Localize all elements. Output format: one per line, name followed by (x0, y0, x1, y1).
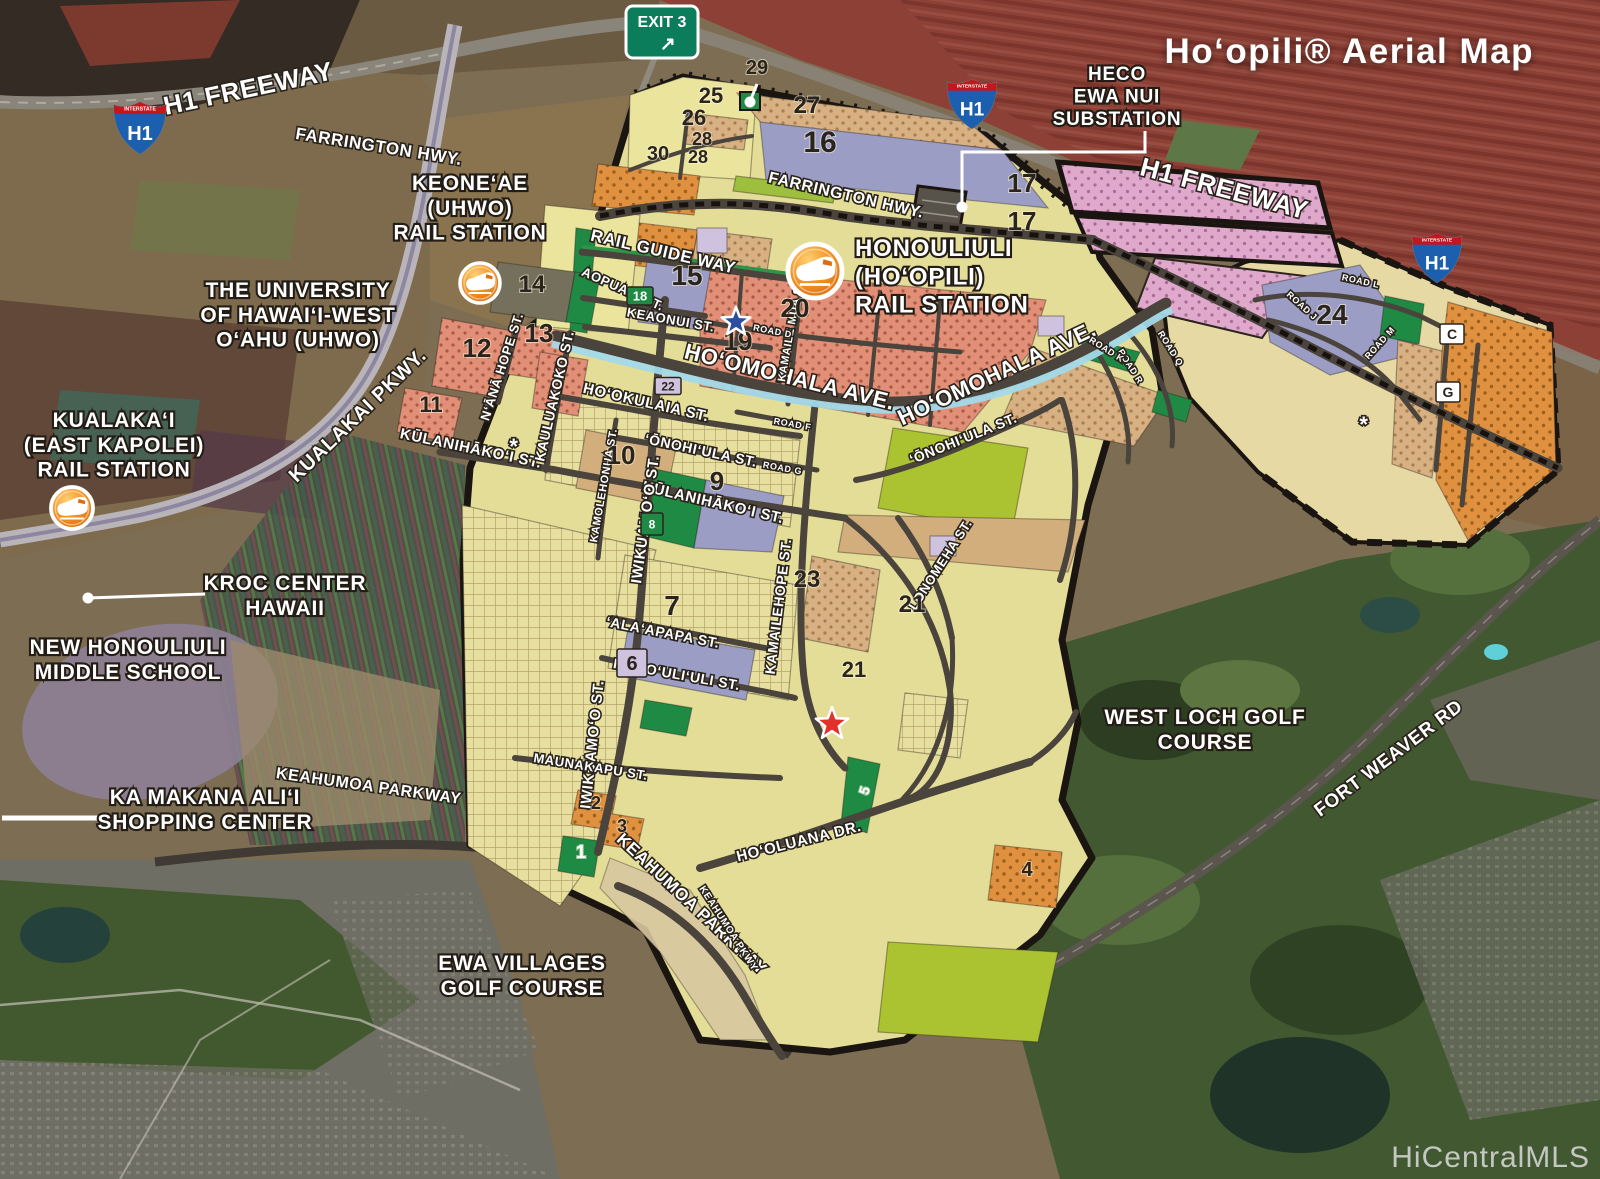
parcel-number-1: 1 (576, 842, 586, 862)
page-title: Hoʻopili® Aerial Map (1164, 32, 1534, 72)
parcel-badge-8: 8 (641, 513, 663, 535)
parcel-number-16: 16 (803, 126, 836, 159)
asterisk-marker: * (509, 434, 518, 459)
parcel-number-7: 7 (664, 590, 680, 621)
place-label-ewa-villages: EWA VILLAGESGOLF COURSE (438, 952, 606, 1000)
parcel-number-15: 15 (671, 260, 702, 291)
parcel-number-29: 29 (746, 57, 768, 79)
svg-text:8: 8 (649, 517, 656, 531)
heco-leader-dot (957, 202, 968, 213)
parcel-badge-6: 6 (617, 649, 647, 677)
svg-text:H1: H1 (127, 123, 153, 145)
exit-3-sign: EXIT 3↗ (626, 6, 698, 58)
parcel-badge-G: G (1436, 382, 1460, 402)
parcel29-leader-dot (745, 97, 756, 108)
asterisk-marker: * (1359, 412, 1368, 437)
parcel-number-30: 30 (647, 143, 669, 165)
svg-text:INTERSTATE: INTERSTATE (124, 107, 156, 113)
svg-text:G: G (1443, 384, 1454, 400)
svg-text:H1: H1 (1425, 253, 1450, 274)
svg-text:H1: H1 (960, 99, 985, 120)
parcel-number-21: 21 (842, 657, 866, 682)
parcel-badge-C: C (1440, 324, 1464, 344)
parcel-number-10: 10 (607, 440, 636, 470)
hoopili-aerial-map: H1 FREEWAYFARRINGTON HWY.FARRINGTON HWY.… (0, 0, 1600, 1179)
kualakai-station-icon (51, 487, 93, 529)
parcel-number-3: 3 (617, 816, 627, 836)
parcel-number-14: 14 (519, 271, 546, 298)
place-label-ka-makana: KA MAKANA ALIʻISHOPPING CENTER (97, 786, 312, 834)
parcel-number-21: 21 (899, 591, 926, 618)
svg-text:18: 18 (633, 289, 647, 304)
watermark: HiCentralMLS (1391, 1141, 1590, 1175)
svg-text:C: C (1447, 326, 1457, 342)
parcel-number-26: 26 (682, 105, 706, 130)
parcel-number-24: 24 (1316, 299, 1348, 330)
exit-arrow-icon: ↗ (660, 34, 676, 55)
parcel-number-28: 28 (688, 147, 708, 167)
parcel-number-17: 17 (1008, 206, 1037, 236)
parcel-number-12: 12 (463, 333, 492, 363)
parcel-number-9: 9 (710, 466, 724, 496)
keoneae-station-icon (460, 263, 500, 303)
parcel-number-27: 27 (794, 92, 821, 119)
parcel-number-17: 17 (1008, 168, 1037, 198)
exit-sign-text: EXIT 3 (638, 14, 687, 31)
svg-text:6: 6 (626, 653, 637, 675)
svg-text:22: 22 (661, 379, 675, 393)
honouliuli-station-icon (788, 244, 842, 298)
parcel-number-23: 23 (794, 566, 821, 593)
place-label-university: THE UNIVERSITYOF HAWAIʻI-WESTOʻAHU (UHWO… (200, 279, 395, 352)
svg-text:INTERSTATE: INTERSTATE (1422, 237, 1453, 243)
parcel-number-4: 4 (1021, 859, 1033, 881)
parcel-badge-22: 22 (655, 378, 681, 395)
map-canvas: H1 FREEWAYFARRINGTON HWY.FARRINGTON HWY.… (0, 0, 1600, 1179)
kroc-leader-dot (83, 593, 94, 604)
parcel-number-2: 2 (591, 793, 601, 813)
place-label-middle-school: NEW HONOULIULIMIDDLE SCHOOL (30, 636, 227, 684)
svg-text:INTERSTATE: INTERSTATE (957, 83, 988, 89)
parcel-number-13: 13 (525, 318, 554, 348)
parcel-badge-18: 18 (627, 287, 653, 305)
parcel-number-11: 11 (419, 392, 442, 417)
parcel-number-28: 28 (692, 129, 712, 149)
